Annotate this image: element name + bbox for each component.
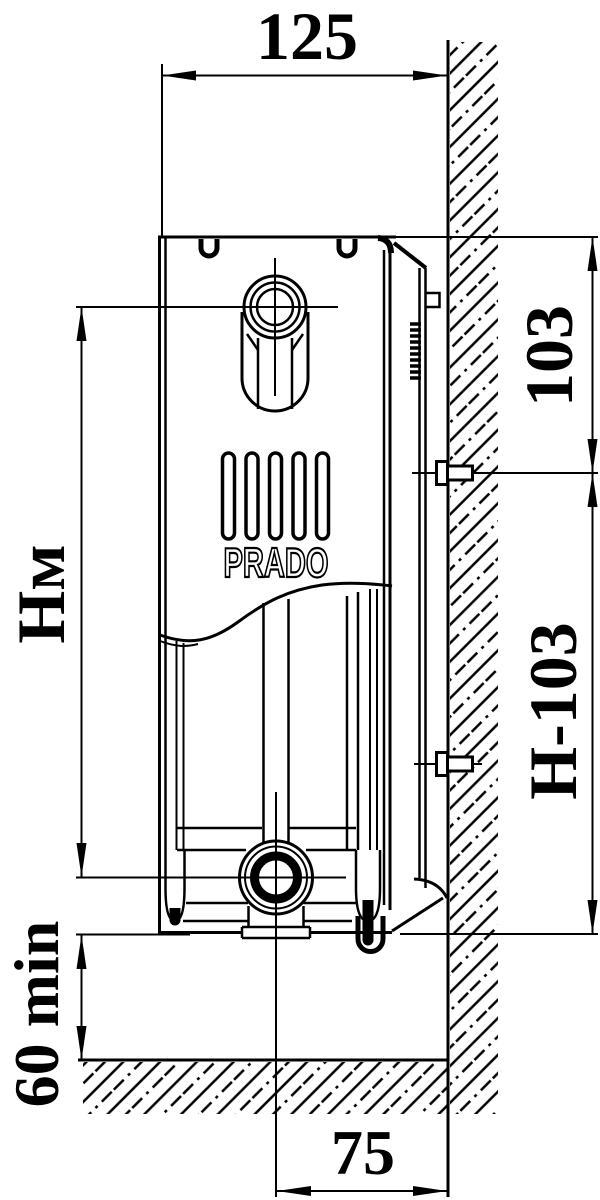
anchor-bolt-top <box>412 462 598 485</box>
mounting-height-arrow-down <box>77 843 87 877</box>
bottom-offset-arrow-down <box>588 900 598 934</box>
bottom-pipe-connection <box>76 792 346 1197</box>
top-offset-arrow-down <box>588 439 598 473</box>
bottom-offset-arrow-up <box>588 473 598 507</box>
wall-to-pipe-arrow-right <box>413 1186 447 1196</box>
depth-arrow-left <box>162 71 196 81</box>
right-bulb-bolt <box>363 900 374 946</box>
floor-clearance-label: 60 min <box>1 921 72 1108</box>
prado-logo: PRADO <box>224 539 329 586</box>
left-bulb-foot <box>170 908 181 926</box>
hanger-notch-right <box>339 239 355 256</box>
anchor-top-sleeve <box>448 466 473 480</box>
vent-slot <box>293 453 305 539</box>
vent-slot <box>246 453 258 539</box>
dimension-wall-to-pipe: 75 <box>277 1117 447 1196</box>
depth-label: 125 <box>256 0 358 74</box>
floor-clearance-arrow-down <box>77 1026 87 1060</box>
foot-curve <box>414 879 447 898</box>
dimensions: 125 103 Н-103 Нм <box>1 0 598 1196</box>
back-panel-top-diagonal <box>394 243 426 268</box>
bottom-offset-label: Н-103 <box>515 622 591 800</box>
mounting-height-label: Нм <box>3 544 79 643</box>
vent-slot <box>317 453 329 539</box>
anchor-bottom-sleeve <box>448 757 473 771</box>
water-channels <box>264 589 378 850</box>
wall-to-pipe-arrow-left <box>277 1186 311 1196</box>
dimension-bottom-offset: Н-103 <box>400 473 598 934</box>
dimension-depth: 125 <box>162 0 447 237</box>
wall <box>448 40 498 1197</box>
foot-diagonal <box>392 898 443 931</box>
wall-hatch <box>450 42 498 1114</box>
top-offset-label: 103 <box>511 305 587 407</box>
anchor-bolt-bottom <box>414 753 482 776</box>
radiator-installation-diagram: PRADO <box>0 0 600 1200</box>
hanger-notch-left <box>201 239 217 256</box>
top-offset-arrow-up <box>588 237 598 271</box>
anchor-bottom-head <box>437 753 448 776</box>
diagram-canvas: PRADO <box>0 0 600 1200</box>
floor-clearance-arrow-up <box>77 935 87 969</box>
vent-slot <box>223 453 235 539</box>
vent-slots <box>223 453 329 539</box>
wall-to-pipe-label: 75 <box>331 1117 395 1188</box>
floor-hatch <box>83 1062 448 1114</box>
dimension-top-offset: 103 <box>511 237 598 473</box>
anchor-top-head <box>437 462 448 485</box>
valve-diagonal-left <box>247 334 258 350</box>
dimension-mounting-height: Нм <box>3 307 87 877</box>
floor <box>78 1060 449 1114</box>
vent-slot <box>270 453 282 539</box>
depth-arrow-right <box>413 71 447 81</box>
top-pipe-connection <box>76 258 338 411</box>
bracket-notch <box>426 293 440 307</box>
mounting-height-arrow-up <box>77 307 87 341</box>
valve-diagonal-right <box>292 334 303 350</box>
